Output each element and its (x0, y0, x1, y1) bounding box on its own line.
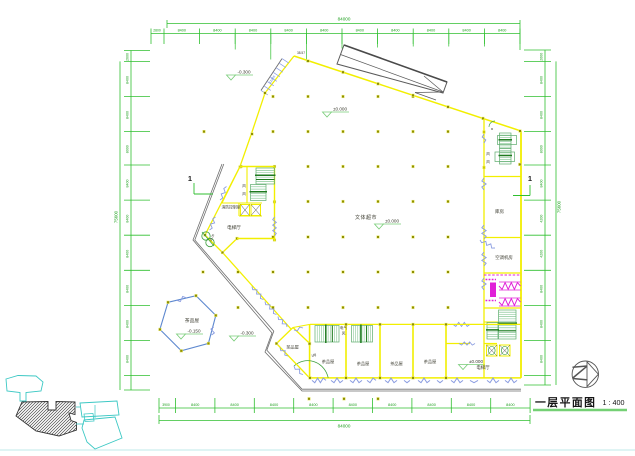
svg-text:M: M (491, 127, 494, 131)
svg-text:8400: 8400 (178, 29, 186, 33)
svg-text:8400: 8400 (391, 29, 399, 33)
svg-text:8400: 8400 (539, 320, 543, 328)
svg-text:消防控制室: 消防控制室 (222, 205, 241, 210)
svg-text:8400: 8400 (126, 285, 130, 293)
svg-text:电梯厅: 电梯厅 (476, 364, 490, 371)
svg-text:茶品屋: 茶品屋 (390, 360, 403, 367)
svg-text:8400: 8400 (467, 403, 475, 407)
svg-text:8400: 8400 (270, 403, 278, 407)
svg-text:空调机房: 空调机房 (495, 254, 513, 261)
svg-text:8400: 8400 (213, 29, 221, 33)
svg-text:8400: 8400 (349, 403, 357, 407)
svg-text:茶品屋: 茶品屋 (322, 358, 335, 365)
svg-text:8400: 8400 (540, 76, 544, 84)
svg-text:库房: 库房 (495, 208, 505, 215)
svg-text:风: 风 (342, 332, 346, 336)
svg-text:8400: 8400 (427, 29, 435, 33)
svg-text:8400: 8400 (540, 355, 544, 363)
svg-text:8400: 8400 (126, 355, 130, 363)
svg-text:1排: 1排 (310, 352, 317, 358)
svg-text:75600: 75600 (557, 200, 562, 213)
svg-text:-0.300: -0.300 (240, 331, 253, 336)
svg-text:风: 风 (242, 192, 246, 196)
svg-text:风: 风 (486, 160, 490, 164)
svg-text:75600: 75600 (114, 210, 119, 223)
svg-text:风: 风 (242, 184, 246, 188)
svg-text:8400: 8400 (540, 180, 544, 188)
svg-text:1 : 400: 1 : 400 (603, 398, 625, 407)
svg-text:1: 1 (188, 174, 192, 183)
svg-text:8400: 8400 (539, 111, 543, 119)
svg-text:茶品屋: 茶品屋 (424, 358, 437, 365)
svg-text:8000: 8000 (540, 145, 544, 153)
svg-text:±0.000: ±0.000 (333, 107, 347, 112)
svg-text:38.57: 38.57 (297, 51, 305, 55)
svg-text:茶品屋: 茶品屋 (286, 344, 299, 351)
svg-text:8400: 8400 (230, 403, 238, 407)
svg-text:3900: 3900 (162, 403, 170, 407)
svg-text:8400: 8400 (126, 180, 130, 188)
svg-text:8400: 8400 (540, 285, 544, 293)
svg-text:±0.000: ±0.000 (469, 359, 483, 364)
svg-text:电梯厅: 电梯厅 (227, 224, 241, 231)
svg-text:8400: 8400 (462, 29, 470, 33)
svg-text:风: 风 (486, 152, 490, 156)
svg-text:茶品屋: 茶品屋 (357, 360, 370, 367)
svg-text:8400: 8400 (191, 403, 199, 407)
svg-text:4200: 4200 (539, 215, 543, 223)
svg-text:一层平面图: 一层平面图 (535, 396, 596, 409)
svg-text:8400: 8400 (320, 29, 328, 33)
svg-text:8400: 8400 (125, 215, 129, 223)
svg-text:8400: 8400 (427, 403, 435, 407)
svg-text:-0.300: -0.300 (237, 70, 250, 75)
svg-text:2600: 2600 (540, 53, 544, 61)
svg-text:84000: 84000 (338, 17, 351, 22)
svg-text:±0.000: ±0.000 (385, 219, 399, 224)
svg-text:8400: 8400 (506, 403, 514, 407)
svg-text:84000: 84000 (338, 424, 351, 429)
svg-text:8400: 8400 (125, 320, 129, 328)
svg-text:8400: 8400 (356, 29, 364, 33)
svg-text:8400: 8400 (388, 403, 396, 407)
svg-text:2800: 2800 (153, 29, 161, 33)
svg-text:文体超市: 文体超市 (355, 214, 377, 221)
svg-text:8400: 8400 (126, 250, 130, 258)
svg-text:8400: 8400 (126, 76, 130, 84)
svg-text:8400: 8400 (249, 29, 257, 33)
svg-text:-0.150: -0.150 (187, 329, 200, 334)
svg-text:4200: 4200 (540, 250, 544, 258)
svg-text:8400: 8400 (284, 29, 292, 33)
svg-text:8400: 8400 (125, 111, 129, 119)
svg-text:8400: 8400 (498, 29, 506, 33)
svg-text:2600: 2600 (126, 53, 130, 61)
svg-text:1: 1 (528, 174, 532, 183)
svg-text:8400: 8400 (309, 403, 317, 407)
svg-text:8000: 8000 (126, 145, 130, 153)
svg-text:茶品屋: 茶品屋 (185, 317, 200, 324)
